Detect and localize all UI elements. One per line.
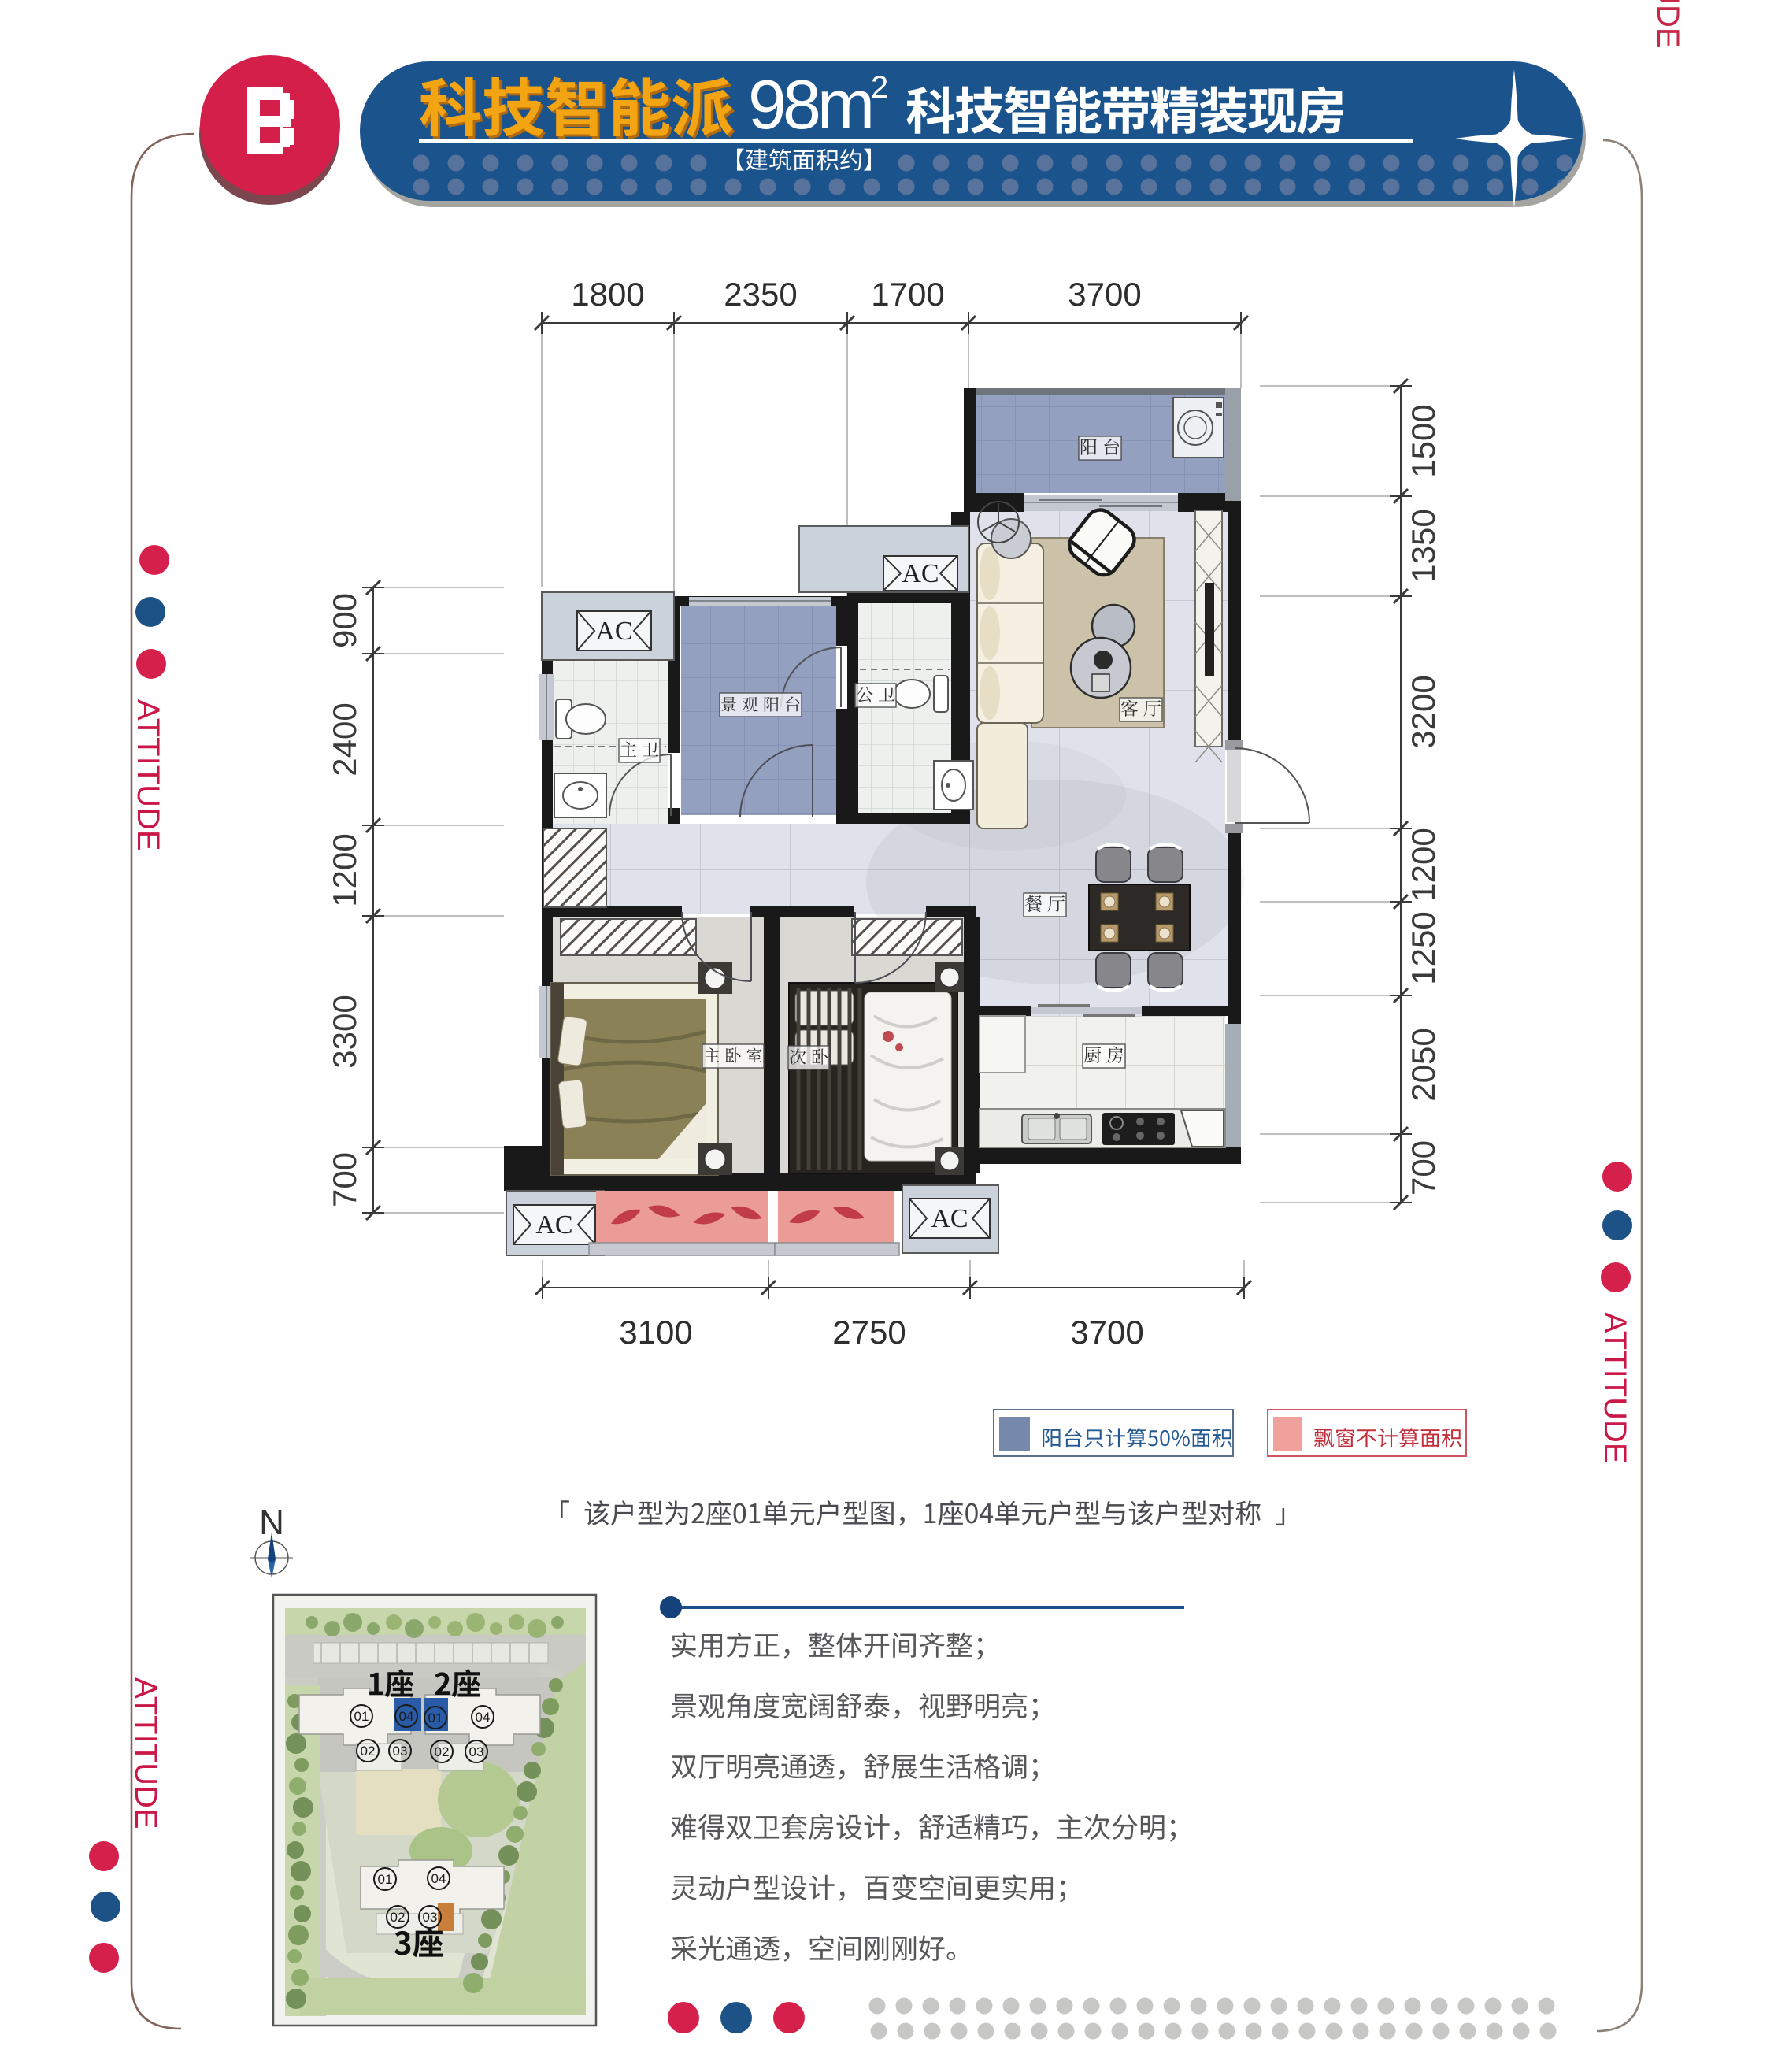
- svg-text:2750: 2750: [832, 1314, 906, 1351]
- svg-text:02: 02: [435, 1744, 450, 1759]
- svg-text:ATTITUDE: ATTITUDE: [131, 699, 165, 851]
- svg-text:03: 03: [393, 1744, 408, 1759]
- svg-text:AC: AC: [902, 559, 939, 588]
- svg-text:1500: 1500: [1405, 404, 1442, 477]
- svg-text:2350: 2350: [724, 276, 797, 313]
- svg-text:2400: 2400: [326, 702, 363, 776]
- svg-text:98m: 98m: [748, 65, 871, 143]
- svg-text:3700: 3700: [1070, 1314, 1143, 1351]
- svg-text:1200: 1200: [1405, 828, 1442, 901]
- svg-text:2050: 2050: [1405, 1028, 1442, 1101]
- svg-text:3300: 3300: [326, 995, 363, 1068]
- svg-text:03: 03: [469, 1744, 484, 1759]
- svg-text:01: 01: [378, 1872, 393, 1887]
- svg-text:1700: 1700: [871, 276, 944, 313]
- svg-text:3200: 3200: [1405, 675, 1442, 748]
- svg-text:04: 04: [431, 1871, 446, 1886]
- svg-text:ATTITUDE: ATTITUDE: [128, 1677, 163, 1829]
- svg-text:3100: 3100: [619, 1314, 692, 1351]
- svg-text:AC: AC: [535, 1210, 572, 1240]
- svg-text:AC: AC: [595, 617, 632, 646]
- svg-text:2: 2: [871, 70, 888, 105]
- svg-text:04: 04: [476, 1710, 491, 1725]
- svg-text:ATTITUDE: ATTITUDE: [1650, 0, 1685, 49]
- svg-text:02: 02: [391, 1910, 406, 1925]
- svg-text:ATTITUDE: ATTITUDE: [1598, 1312, 1632, 1464]
- svg-text:700: 700: [1405, 1140, 1442, 1195]
- svg-text:1200: 1200: [326, 833, 363, 906]
- svg-text:900: 900: [326, 593, 363, 648]
- svg-text:03: 03: [423, 1910, 438, 1925]
- svg-text:AC: AC: [931, 1204, 968, 1233]
- svg-text:04: 04: [399, 1709, 414, 1724]
- svg-text:1800: 1800: [571, 276, 644, 313]
- svg-text:02: 02: [361, 1744, 376, 1759]
- svg-text:01: 01: [428, 1711, 443, 1725]
- svg-text:3700: 3700: [1068, 276, 1141, 313]
- svg-text:01: 01: [354, 1709, 369, 1724]
- svg-text:700: 700: [326, 1152, 363, 1207]
- svg-text:1250: 1250: [1405, 911, 1442, 984]
- svg-text:1350: 1350: [1405, 509, 1442, 582]
